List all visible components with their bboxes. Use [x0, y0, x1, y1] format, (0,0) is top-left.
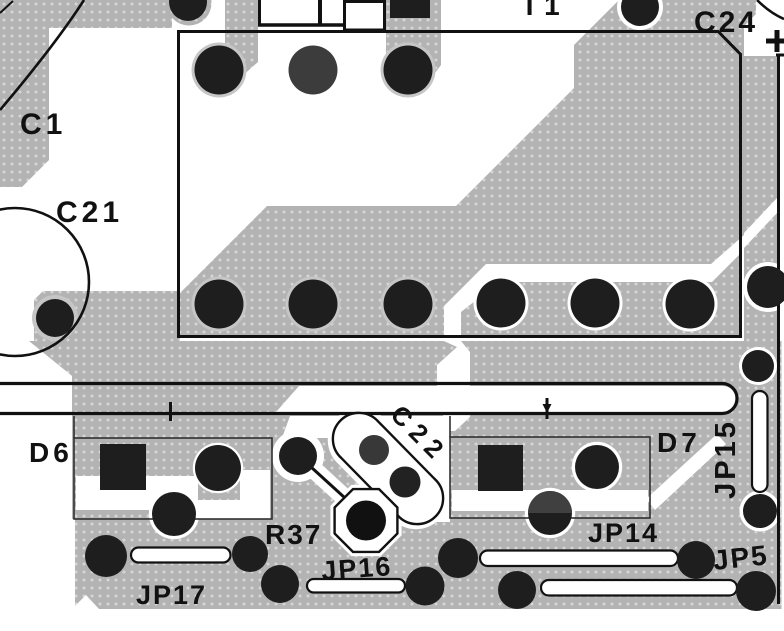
svg-text:R37: R37 — [265, 519, 322, 550]
svg-text:JP17: JP17 — [136, 580, 207, 610]
svg-text:C24: C24 — [694, 6, 758, 39]
svg-text:JP5: JP5 — [711, 539, 770, 576]
svg-text:D7: D7 — [657, 427, 701, 458]
svg-text:T1: T1 — [521, 0, 566, 21]
svg-text:C21: C21 — [56, 196, 123, 229]
svg-text:C1: C1 — [20, 108, 66, 141]
svg-text:D6: D6 — [29, 437, 73, 468]
svg-text:JP16: JP16 — [320, 551, 393, 586]
svg-text:JP15: JP15 — [710, 419, 742, 499]
svg-text:JP14: JP14 — [588, 518, 659, 548]
